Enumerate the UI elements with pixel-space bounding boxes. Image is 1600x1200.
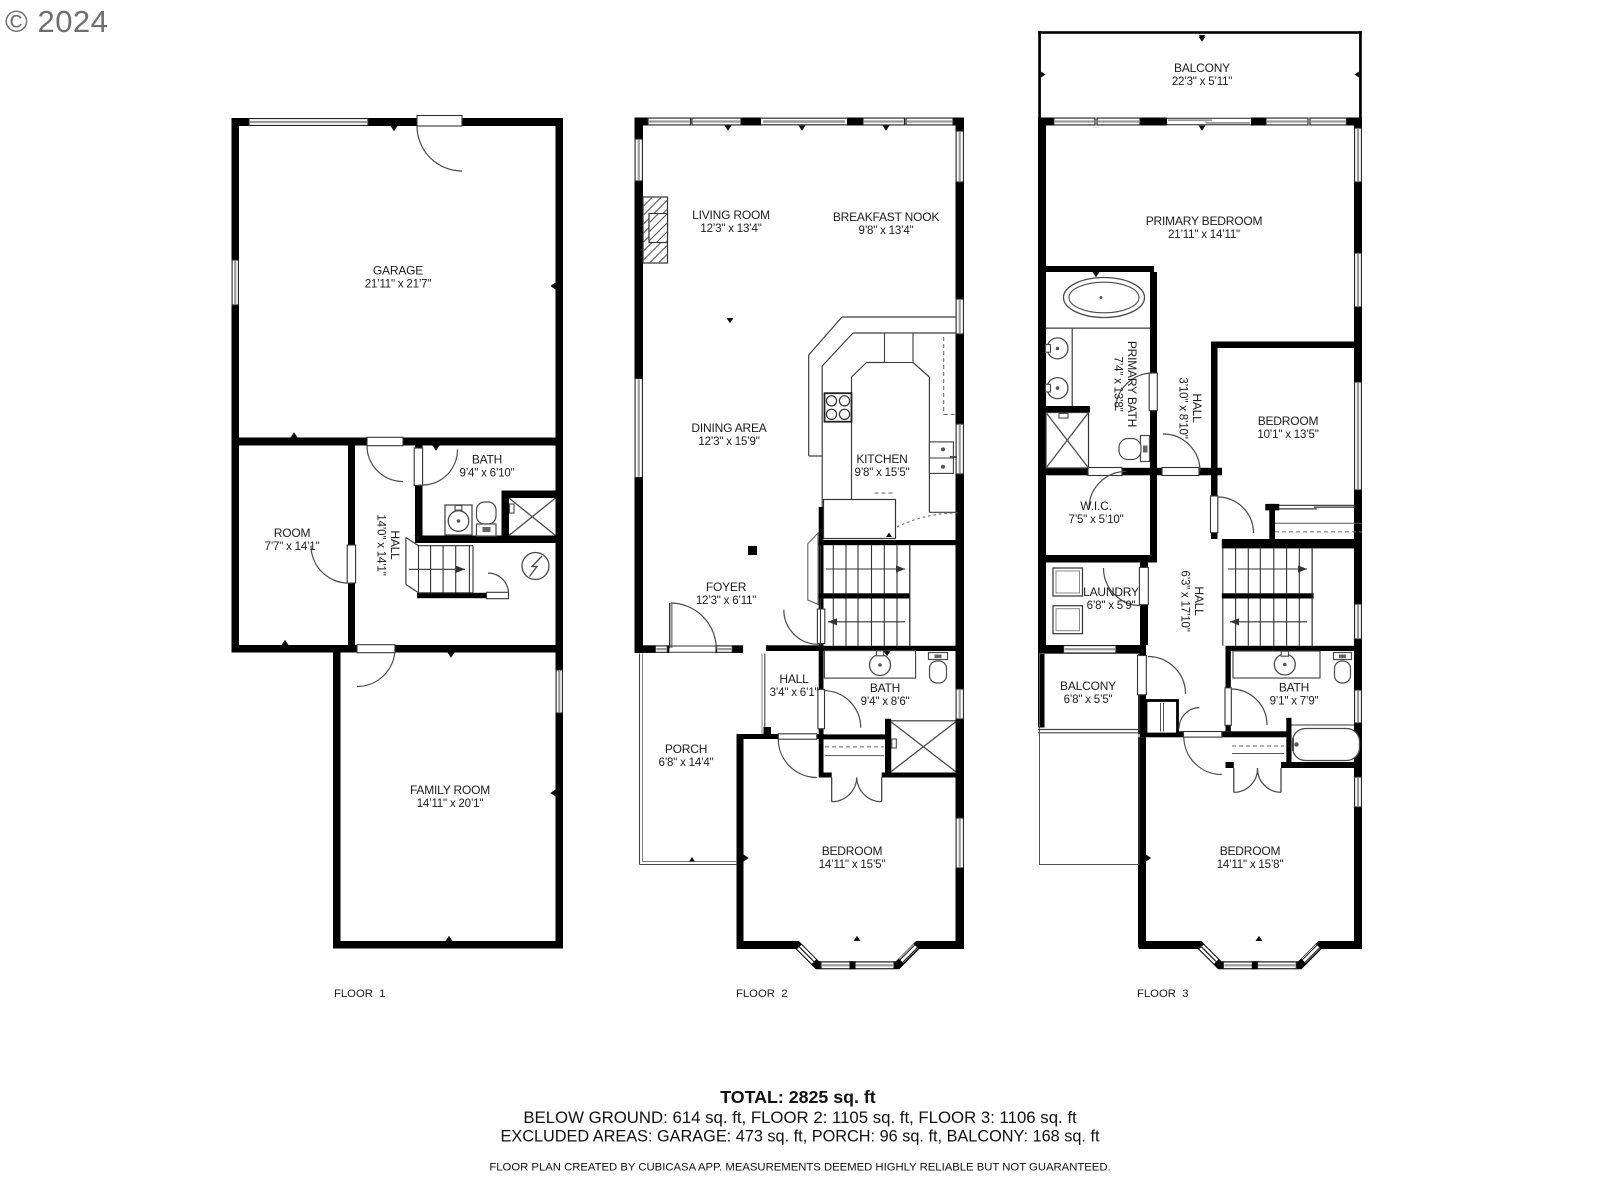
svg-text:PORCH: PORCH (665, 742, 707, 756)
svg-text:BALCONY: BALCONY (1174, 61, 1230, 75)
svg-text:© 2024: © 2024 (5, 4, 108, 39)
svg-text:BELOW GROUND: 614 sq. ft, FLOO: BELOW GROUND: 614 sq. ft, FLOOR 2: 1105 … (523, 1108, 1077, 1127)
svg-text:6’3" x 17’10": 6’3" x 17’10" (1179, 570, 1191, 631)
svg-text:6’8" x 5’9": 6’8" x 5’9" (1087, 600, 1136, 612)
svg-text:FLOOR 1: FLOOR 1 (334, 988, 385, 1000)
svg-text:9’1" x 7’9": 9’1" x 7’9" (1270, 696, 1319, 708)
svg-text:PRIMARY BATH: PRIMARY BATH (1125, 341, 1139, 427)
svg-text:9’8" x 13’4": 9’8" x 13’4" (859, 225, 914, 237)
svg-text:9’4" x 8’6": 9’4" x 8’6" (861, 696, 910, 708)
svg-text:FLOOR 2: FLOOR 2 (736, 988, 787, 1000)
svg-text:BEDROOM: BEDROOM (1220, 844, 1281, 858)
svg-text:6’8" x 5’5": 6’8" x 5’5" (1064, 694, 1113, 706)
svg-text:BEDROOM: BEDROOM (1258, 414, 1319, 428)
svg-text:BREAKFAST NOOK: BREAKFAST NOOK (833, 210, 940, 224)
svg-text:BALCONY: BALCONY (1060, 679, 1116, 693)
svg-text:6’8" x 14’4": 6’8" x 14’4" (659, 757, 714, 769)
svg-text:21’11" x 14’11": 21’11" x 14’11" (1168, 229, 1240, 241)
svg-text:14’11" x 20’1": 14’11" x 20’1" (417, 798, 484, 810)
svg-text:3’4" x 6’1": 3’4" x 6’1" (770, 687, 819, 699)
svg-text:GARAGE: GARAGE (373, 264, 423, 278)
svg-text:HALL: HALL (1192, 586, 1206, 616)
svg-text:ROOM: ROOM (274, 526, 311, 540)
svg-text:21’11" x 21’7": 21’11" x 21’7" (365, 279, 432, 291)
svg-text:3’10" x 8’10": 3’10" x 8’10" (1177, 377, 1189, 438)
svg-text:BATH: BATH (472, 453, 502, 467)
svg-text:FOYER: FOYER (706, 580, 747, 594)
svg-text:HALL: HALL (388, 530, 402, 560)
svg-text:DINING AREA: DINING AREA (691, 421, 766, 435)
svg-text:FLOOR 3: FLOOR 3 (1137, 988, 1188, 1000)
svg-text:TOTAL: 2825 sq. ft: TOTAL: 2825 sq. ft (720, 1087, 876, 1107)
svg-text:12’3" x 15’9": 12’3" x 15’9" (698, 436, 759, 448)
svg-text:PRIMARY BEDROOM: PRIMARY BEDROOM (1146, 214, 1263, 228)
svg-text:HALL: HALL (779, 672, 809, 686)
svg-text:14’0" x 14’1": 14’0" x 14’1" (375, 514, 387, 575)
svg-text:7’7" x 14’1": 7’7" x 14’1" (265, 541, 320, 553)
svg-text:12’3" x 6’11": 12’3" x 6’11" (696, 595, 756, 607)
svg-text:KITCHEN: KITCHEN (856, 452, 907, 466)
svg-text:14’11" x 15’8": 14’11" x 15’8" (1217, 859, 1284, 871)
svg-text:FLOOR PLAN CREATED BY CUBICASA: FLOOR PLAN CREATED BY CUBICASA APP. MEAS… (489, 1162, 1110, 1174)
svg-text:7’4" x 13’8": 7’4" x 13’8" (1112, 357, 1124, 412)
svg-text:LIVING ROOM: LIVING ROOM (692, 208, 770, 222)
svg-text:BATH: BATH (1279, 681, 1309, 695)
svg-text:14’11" x 15’5": 14’11" x 15’5" (819, 859, 886, 871)
svg-text:9’4" x 6’10": 9’4" x 6’10" (460, 468, 515, 480)
svg-text:FAMILY ROOM: FAMILY ROOM (410, 783, 490, 797)
svg-text:BEDROOM: BEDROOM (822, 844, 883, 858)
svg-text:EXCLUDED AREAS: GARAGE: 473 sq: EXCLUDED AREAS: GARAGE: 473 sq. ft, PORC… (500, 1128, 1099, 1146)
svg-text:BATH: BATH (870, 681, 900, 695)
svg-text:22’3" x 5’11": 22’3" x 5’11" (1172, 76, 1232, 88)
svg-text:LAUNDRY: LAUNDRY (1083, 585, 1139, 599)
svg-text:W.I.C.: W.I.C. (1080, 499, 1111, 513)
svg-text:9’8" x 15’5": 9’8" x 15’5" (855, 467, 910, 479)
svg-text:10’1" x 13’5": 10’1" x 13’5" (1257, 429, 1318, 441)
svg-text:7’5" x 5’10": 7’5" x 5’10" (1069, 514, 1124, 526)
svg-text:HALL: HALL (1190, 393, 1204, 423)
svg-text:12’3" x 13’4": 12’3" x 13’4" (700, 223, 761, 235)
